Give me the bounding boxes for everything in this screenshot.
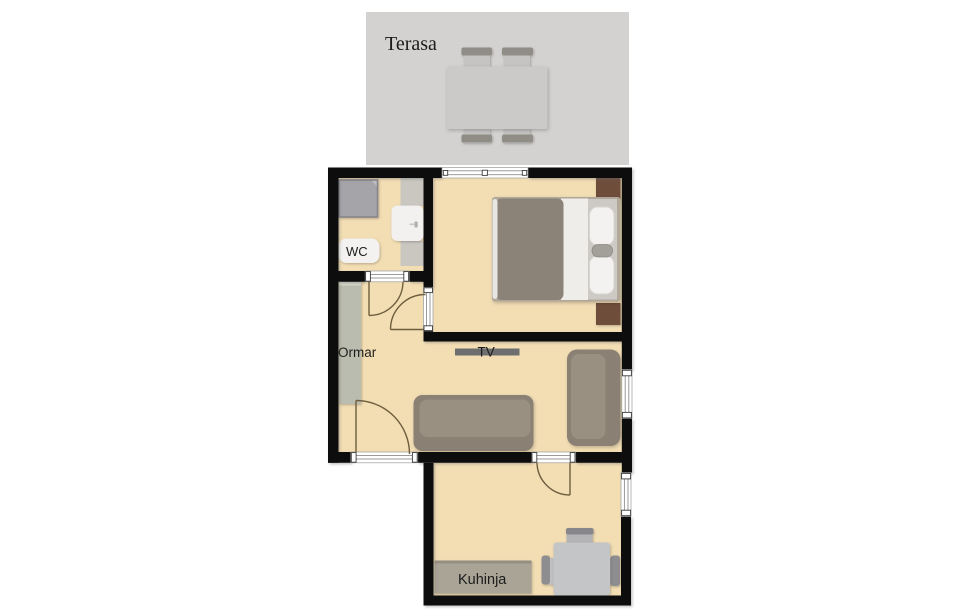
svg-text:TV: TV (478, 345, 495, 360)
svg-text:Kuhinja: Kuhinja (458, 572, 507, 588)
svg-text:WC: WC (346, 244, 368, 259)
svg-text:Terasa: Terasa (385, 33, 437, 55)
svg-text:Ormar: Ormar (338, 345, 377, 360)
